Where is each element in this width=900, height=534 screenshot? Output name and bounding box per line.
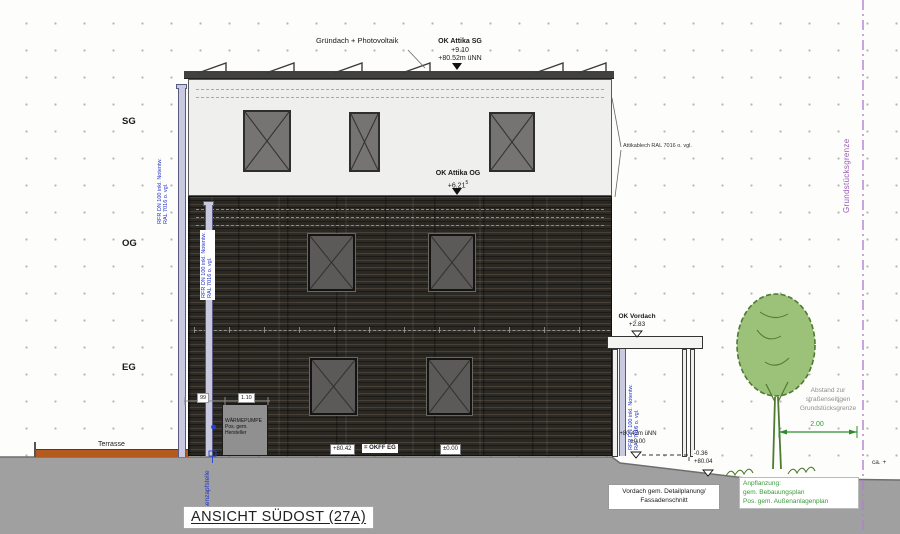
planting-note-line: gem. Bebauungsplan <box>743 489 855 498</box>
dim-label-110: 1.10 <box>238 393 255 403</box>
facade-joint-line <box>196 225 604 226</box>
attikablech-note: Attikablech RAL 7016 o. vgl. <box>623 143 692 150</box>
heat-pump-box: WÄRMEPUMPE Pos. gem. Hersteller <box>222 404 268 456</box>
downpipe-label-line: RAL 7016 o. vgl. <box>634 384 640 450</box>
level-okff-eq: = OKFF EG <box>362 444 398 453</box>
terrace-label: Terrasse <box>98 441 125 449</box>
dim-label-99: 99 <box>197 393 209 403</box>
tree-icon <box>726 294 815 476</box>
vordach-level-ticks <box>194 327 610 333</box>
window-eg-2 <box>427 358 472 415</box>
canopy-post-right-2 <box>690 349 695 457</box>
facade-joint-line <box>196 217 604 218</box>
terrace <box>35 449 189 457</box>
level-rel: +2.83 <box>611 321 663 329</box>
level-rel: +6.215 <box>413 179 503 191</box>
level-ok-vordach: OK Vordach +2.83 <box>611 313 663 329</box>
level-name: OK Vordach <box>611 313 663 321</box>
facade-joint-line <box>196 97 604 98</box>
downpipe-label-canopy: RFR DN 100 inkl. Notentw. RAL 7016 o. vg… <box>628 384 641 450</box>
canopy-beam <box>607 336 703 349</box>
level-attika-sg: OK Attika SG +9.10 +80.52m üNN <box>415 38 505 64</box>
floor-label-og: OG <box>122 238 137 249</box>
facade-joint-line <box>196 89 604 90</box>
ca-label: ca. + <box>872 459 886 467</box>
level-name: OK Attika SG <box>415 38 505 47</box>
heat-pump-label: Hersteller <box>225 430 267 436</box>
level-terrain: -0.36 +80.04 <box>693 450 714 466</box>
canopy-note-line: Fassadenschnitt <box>611 497 717 506</box>
window-sg-1 <box>243 110 291 172</box>
level-abs: +80.52m üNN <box>415 55 505 64</box>
floor-label-eg: EG <box>122 362 136 373</box>
downpipe-label-line: RAL 7016 o. vgl. <box>207 232 213 298</box>
planting-note-box: Anpflanzung: gem. Bebauungsplan Pos. gem… <box>739 477 859 509</box>
level-okff-rel: ±0.00 <box>440 444 461 455</box>
facade-joint-line <box>196 209 604 210</box>
level-rel: +9.10 <box>415 47 505 56</box>
terrace-edge <box>34 442 36 457</box>
level-okff-abs: +80.42 <box>330 444 355 455</box>
level-attika-og: OK Attika OG +6.215 <box>413 170 503 190</box>
window-og-2 <box>429 234 475 291</box>
canopy-post-right-1 <box>682 349 687 457</box>
downpipe-label-line: RAL 7016 o. vgl. <box>163 158 169 224</box>
level-abs: +80.04 <box>694 458 713 466</box>
floor-label-sg: SG <box>122 116 136 127</box>
planting-note-line: Pos. gem. Außenanlagenplan <box>743 498 855 507</box>
elevation-drawing: Terrasse WÄRMEPUMPE Pos. gem. <box>0 0 900 534</box>
abstand-note: Abstand zur straßenseitigen Grundstücksg… <box>778 386 878 413</box>
roof-label: Gründach + Photovoltaik <box>316 36 398 45</box>
downpipe-left <box>178 88 186 457</box>
drawing-title: ANSICHT SÜDOST (27A) <box>183 506 374 529</box>
window-og-1 <box>308 234 355 291</box>
window-eg-1 <box>310 358 357 415</box>
downpipe-label-mid: RFR DN 100 inkl. Notentw. RAL 7016 o. vg… <box>200 230 215 300</box>
property-boundary-label: Grundstücksgrenze <box>842 139 851 213</box>
window-sg-3 <box>489 112 535 172</box>
downpipe-label-left: RFR DN 100 inkl. Notentw. RAL 7016 o. vg… <box>157 158 170 224</box>
window-sg-2 <box>349 112 380 172</box>
planting-note-line: Anpflanzung: <box>743 480 855 489</box>
abstand-line: Grundstücksgrenze <box>778 404 878 413</box>
tree-dim-label: 2.00 <box>800 421 834 429</box>
abstand-line: straßenseitigen <box>778 395 878 404</box>
canopy-note-line: Vordach gem. Detailplanung/ <box>611 488 717 497</box>
level-rel-sup: 5 <box>465 180 468 186</box>
level-rel: -0.36 <box>694 450 713 458</box>
abstand-line: Abstand zur <box>778 386 878 395</box>
level-name: OK Attika OG <box>413 170 503 179</box>
roof-edge <box>184 71 614 79</box>
canopy-note-box: Vordach gem. Detailplanung/ Fassadenschn… <box>608 484 720 510</box>
